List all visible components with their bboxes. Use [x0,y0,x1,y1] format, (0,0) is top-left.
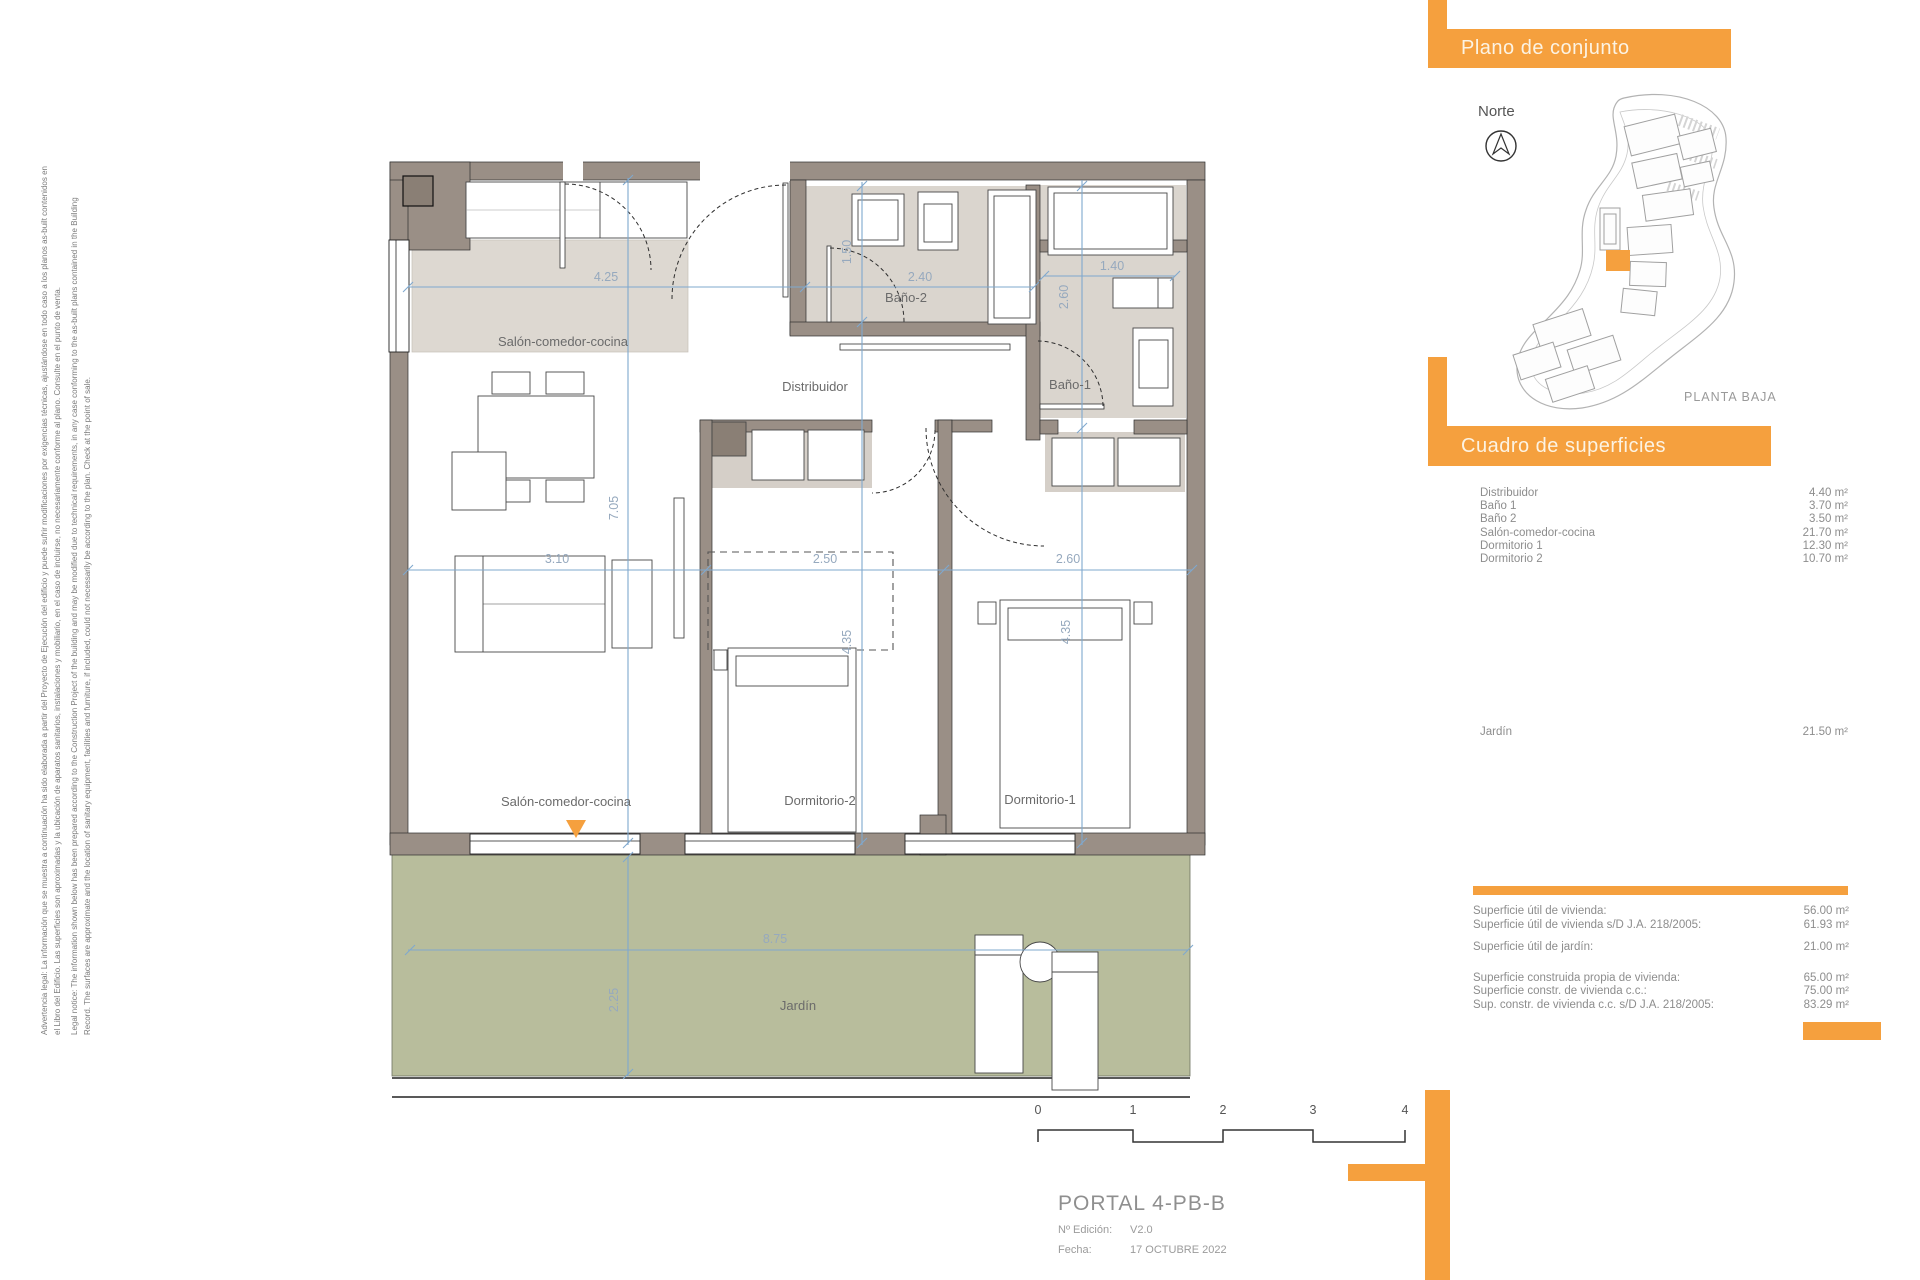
room-label-dorm1: Dormitorio-1 [1004,792,1076,807]
summary-table: Superficie útil de vivienda:56.00 m² Sup… [1473,905,1849,1013]
room-label-bano1: Baño-1 [1049,377,1091,392]
accent-bar-bottom-vertical [1425,1090,1450,1280]
svg-text:1: 1 [1130,1103,1137,1117]
summary-row: Superficie útil de vivienda:56.00 m² [1473,905,1849,919]
overview-banner: Plano de conjunto [1428,29,1731,68]
areas-banner: Cuadro de superficies [1428,426,1771,466]
room-label-salon-bottom: Salón-comedor-cocina [501,794,632,809]
svg-text:3.10: 3.10 [545,552,569,566]
table-row: Baño 13.70 m² [1480,500,1848,513]
summary-divider-bar [1473,886,1848,895]
summary-row: Superficie constr. de vivienda c.c.:75.0… [1473,985,1849,999]
legal-disclaimer-en-1: Legal notice: The information shown belo… [70,197,79,1035]
accent-bar-bottom-arm [1348,1164,1425,1181]
edition-row: Nº Edición:V2.0 [1058,1224,1153,1236]
table-row: Dormitorio 112.30 m² [1480,540,1848,553]
summary-row: Superficie útil de jardín:21.00 m² [1473,941,1849,955]
accent-bar-areas [1428,357,1447,427]
svg-text:4.35: 4.35 [1059,620,1073,644]
svg-text:2: 2 [1220,1103,1227,1117]
site-plan-drawing [1513,94,1735,408]
legal-disclaimer-es-1: Advertencia legal: La información que se… [40,166,49,1035]
legal-disclaimer-en-2: Record. The surfaces are approximate and… [83,377,92,1035]
room-label-bano2: Baño-2 [885,290,927,305]
room-label-salon-top: Salón-comedor-cocina [498,334,629,349]
areas-banner-label: Cuadro de superficies [1461,435,1666,457]
areas-table: Distribuidor4.40 m² Baño 13.70 m² Baño 2… [1480,487,1848,566]
svg-text:2.50: 2.50 [813,552,837,566]
svg-text:1.50: 1.50 [840,240,854,264]
accent-bar-top [1428,0,1447,31]
site-map: Norte [1462,90,1782,422]
svg-text:4: 4 [1402,1103,1409,1117]
table-row: Distribuidor4.40 m² [1480,487,1848,500]
svg-text:4.25: 4.25 [594,270,618,284]
room-label-dorm2: Dormitorio-2 [784,793,856,808]
summary-row: Superficie útil de vivienda s/D J.A. 218… [1473,919,1849,933]
svg-text:2.40: 2.40 [908,270,932,284]
unit-location-marker [1606,250,1630,271]
table-row: Salón-comedor-cocina21.70 m² [1480,527,1848,540]
svg-text:4.35: 4.35 [840,630,854,654]
overview-banner-label: Plano de conjunto [1461,37,1630,59]
garden-area-row: Jardín 21.50 m² [1480,726,1848,739]
summary-row: Sup. constr. de vivienda c.c. s/D J.A. 2… [1473,999,1849,1013]
north-label: Norte [1478,103,1515,120]
floor-plan-drawing: 4.25 2.40 1.40 1.50 2.60 7.05 3.10 2.50 … [370,148,1232,1110]
scale-bar: 0 1 2 3 4 [1020,1100,1420,1152]
planta-label: PLANTA BAJA [1684,390,1777,404]
table-row: Baño 23.50 m² [1480,513,1848,526]
svg-text:8.75: 8.75 [763,932,787,946]
sheet-title: PORTAL 4-PB-B [1058,1192,1226,1216]
svg-text:0: 0 [1035,1103,1042,1117]
svg-text:7.05: 7.05 [607,496,621,520]
svg-text:2.25: 2.25 [607,988,621,1012]
room-label-jardin: Jardín [780,998,816,1013]
svg-text:3: 3 [1310,1103,1317,1117]
table-row: Dormitorio 210.70 m² [1480,553,1848,566]
accent-bar-small [1803,1022,1881,1040]
svg-text:2.60: 2.60 [1057,285,1071,309]
north-compass-icon [1486,131,1516,161]
room-label-distribuidor: Distribuidor [782,379,848,394]
summary-row: Superficie construida propia de vivienda… [1473,972,1849,986]
floorplan-sheet: Advertencia legal: La información que se… [0,0,1920,1280]
svg-text:2.60: 2.60 [1056,552,1080,566]
date-row: Fecha:17 OCTUBRE 2022 [1058,1244,1227,1256]
svg-text:1.40: 1.40 [1100,259,1124,273]
legal-disclaimer-es-2: el Libro del Edificio. Las superficies s… [53,287,62,1035]
